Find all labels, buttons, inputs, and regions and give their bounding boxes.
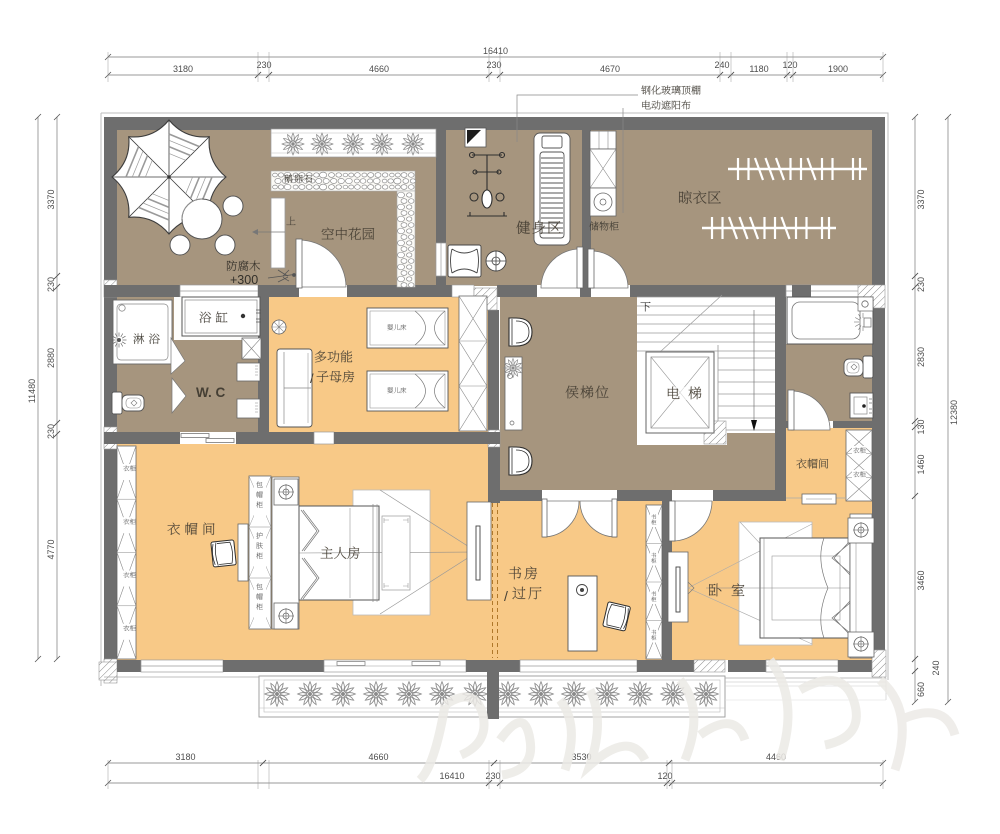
svg-text:/: /	[504, 588, 508, 604]
svg-text:240: 240	[714, 60, 729, 70]
svg-text:230: 230	[256, 60, 271, 70]
svg-text:230: 230	[485, 771, 500, 781]
svg-text:3180: 3180	[175, 752, 195, 762]
svg-text:3370: 3370	[916, 189, 926, 209]
svg-text:16410: 16410	[483, 46, 508, 56]
svg-text:4770: 4770	[46, 539, 56, 559]
svg-text:4660: 4660	[369, 64, 389, 74]
svg-text:11480: 11480	[27, 379, 37, 403]
svg-text:120: 120	[657, 771, 672, 781]
svg-text:16410: 16410	[439, 771, 464, 781]
svg-text:+300: +300	[230, 273, 258, 287]
svg-text:2880: 2880	[46, 348, 56, 368]
svg-text:2830: 2830	[916, 347, 926, 367]
svg-text:3180: 3180	[173, 64, 193, 74]
svg-text:4670: 4670	[600, 64, 620, 74]
svg-text:240: 240	[931, 660, 941, 675]
svg-text:3370: 3370	[46, 189, 56, 209]
svg-text:W. C: W. C	[196, 385, 225, 400]
svg-text:1180: 1180	[749, 64, 768, 74]
svg-text:12380: 12380	[949, 400, 959, 425]
svg-text:4660: 4660	[368, 752, 388, 762]
svg-text:130: 130	[916, 419, 926, 434]
svg-text:1460: 1460	[916, 454, 926, 474]
svg-text:3460: 3460	[916, 570, 926, 590]
svg-text:230: 230	[486, 60, 501, 70]
svg-text:660: 660	[916, 682, 926, 697]
svg-text:120: 120	[782, 60, 797, 70]
svg-text:1900: 1900	[828, 64, 848, 74]
svg-text:/: /	[310, 371, 314, 386]
